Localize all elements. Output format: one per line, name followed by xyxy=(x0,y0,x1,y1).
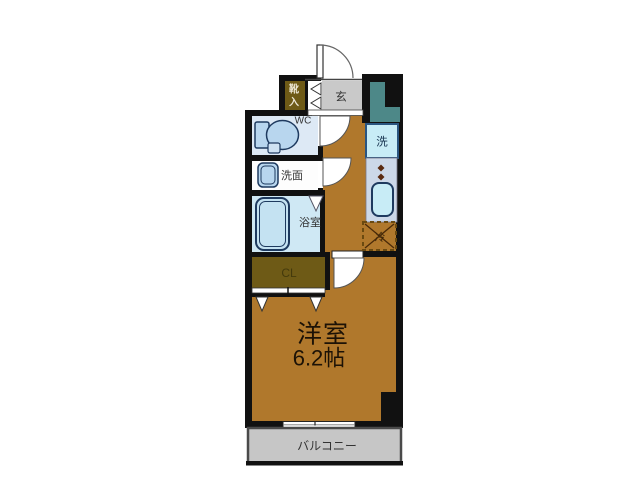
entrance-door-leaf xyxy=(317,45,323,78)
washroom-label: 洗面 xyxy=(281,169,303,182)
bathtub-outer xyxy=(256,198,289,250)
floor-plan: 玄 靴 入 WC 洗面 浴室 CL 洗 冷 洋室 6.2帖 バルコニー xyxy=(0,0,640,480)
balcony-outer-edge xyxy=(246,461,403,466)
floor-plan-page: 玄 靴 入 WC 洗面 浴室 CL 洗 冷 洋室 6.2帖 バルコニー xyxy=(0,0,640,480)
entrance-step xyxy=(308,110,363,116)
entrance-door-arc-icon xyxy=(320,45,353,78)
wall xyxy=(245,190,325,196)
entrance-hall-label: 玄 xyxy=(335,90,347,104)
washing-machine-label: 洗 xyxy=(376,136,388,149)
wc-label: WC xyxy=(295,116,312,127)
washbasin-icon xyxy=(258,163,278,187)
wall xyxy=(305,81,308,111)
wall-column-notch xyxy=(381,392,403,428)
wall xyxy=(245,155,323,161)
kitchen-sink-icon xyxy=(372,183,393,216)
closet-label: CL xyxy=(281,266,297,280)
room-door-leaf xyxy=(332,251,363,258)
wall xyxy=(245,252,330,257)
bathtub-icon xyxy=(256,198,289,250)
shoe-cabinet-label-line2: 入 xyxy=(289,97,299,109)
shoe-cabinet-label-line1: 靴 xyxy=(289,83,299,96)
balcony-label: バルコニー xyxy=(297,439,357,453)
refrigerator-label: 冷 xyxy=(375,230,386,243)
toilet-base xyxy=(268,143,280,153)
bathroom-label: 浴室 xyxy=(299,215,321,229)
wall xyxy=(325,257,330,290)
main-room-size-label: 6.2帖 xyxy=(293,345,346,370)
